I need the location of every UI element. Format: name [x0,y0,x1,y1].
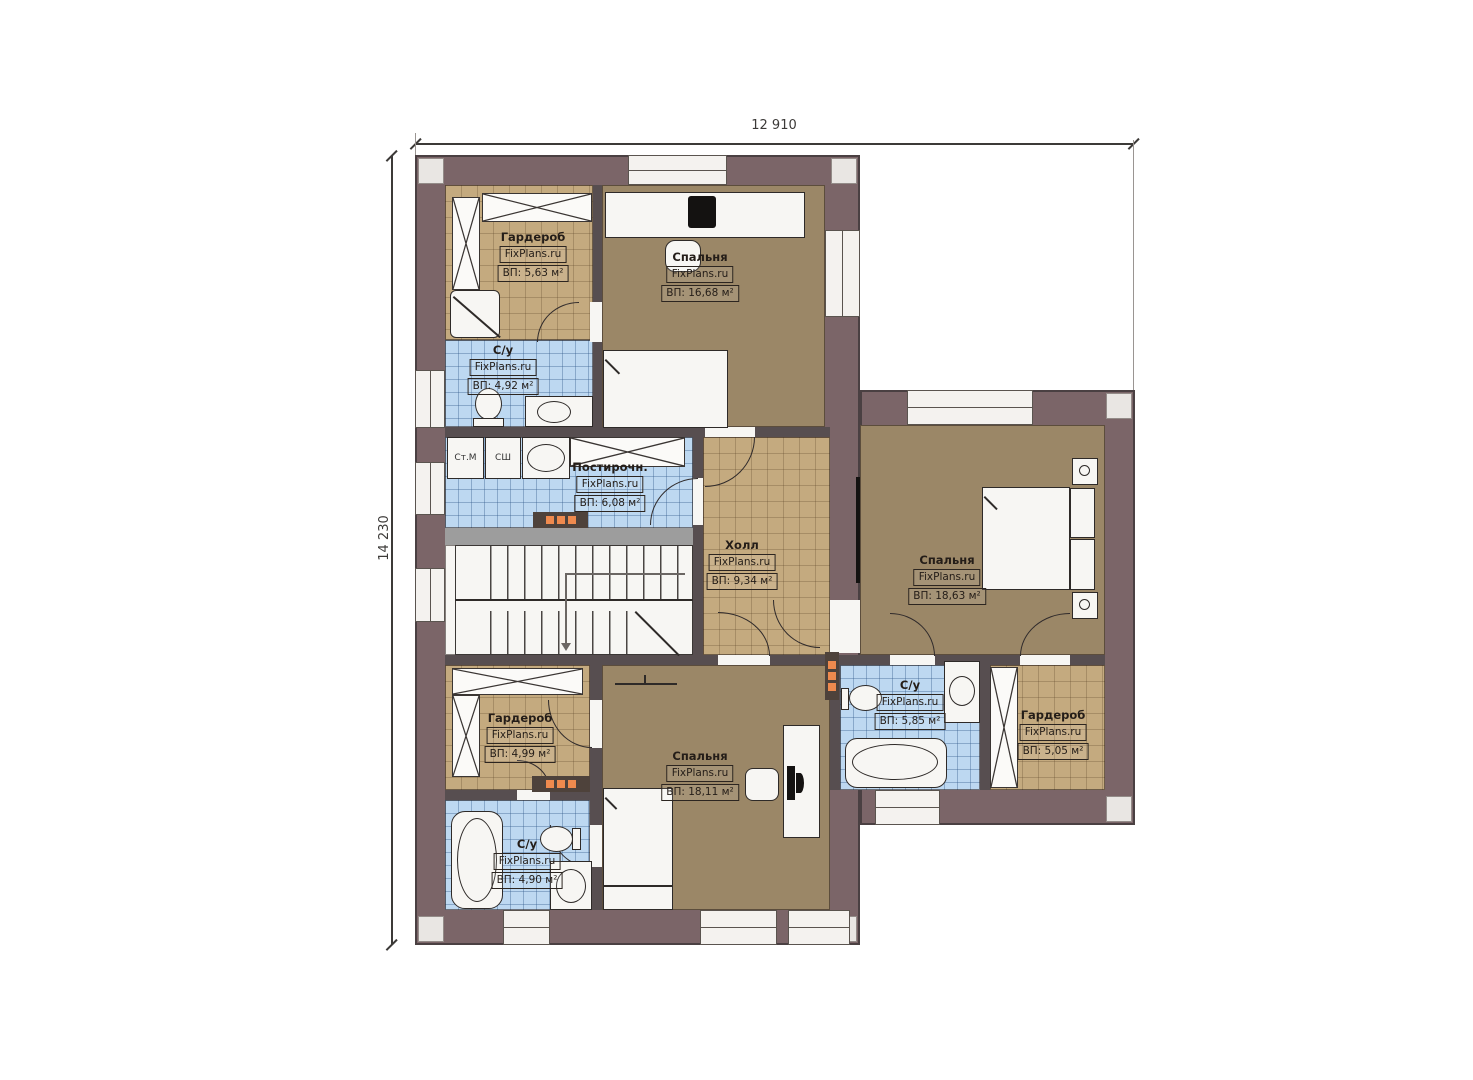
room-source: FixPlans.ru [487,727,554,744]
room-area: ВП: 18,11 м² [661,784,739,801]
room-name: Гардероб [501,230,566,244]
window [628,155,727,185]
room-source: FixPlans.ru [667,266,734,283]
sink [527,444,565,472]
blanket-fold [605,797,617,809]
room-label-bathroom-right: С/у FixPlans.ru ВП: 5,85 м² [875,678,946,730]
ceiling-lamp [615,683,677,685]
room-label-bedroom-right: Спальня FixPlans.ru ВП: 18,63 м² [908,553,986,605]
window [503,910,550,945]
bed [603,350,728,428]
nightstand [1072,592,1098,619]
building: Ст.М СШ Гардероб FixPlans.ru ВП: 5,63 м²… [415,155,1135,945]
room-name: Холл [725,538,759,552]
wall-corner [418,158,444,184]
dimension-width-line [415,143,1133,145]
room-name: Гардероб [488,711,553,725]
lamp [1079,599,1090,610]
headboard [1070,539,1095,590]
door-opening [830,600,860,653]
window [415,462,445,515]
washing-machine: Ст.М [447,437,484,479]
door-opening [718,655,770,665]
shower [450,290,500,338]
room-name: С/у [517,837,537,851]
room-name: Постирочн. [572,460,647,474]
bathtub-basin [852,744,938,780]
door-opening [705,427,755,437]
bed [982,487,1070,590]
wall-corner [1106,796,1132,822]
bed [603,788,673,886]
room-source: FixPlans.ru [577,476,644,493]
stair-walkline [565,573,685,575]
room-label-bedroom-bottom: Спальня FixPlans.ru ВП: 18,11 м² [661,749,739,801]
wall [445,427,830,437]
wall [445,655,1105,665]
wall [980,665,990,790]
toilet-tank [473,418,504,427]
door-opening [1020,655,1070,665]
room-label-hall: Холл FixPlans.ru ВП: 9,34 м² [707,538,778,590]
window [415,568,445,622]
printer [688,196,716,228]
room-label-bathroom-bottom: С/у FixPlans.ru ВП: 4,90 м² [492,837,563,889]
tv [856,477,860,583]
toilet-tank [841,688,849,710]
room-label-wardrobe-bottom: Гардероб FixPlans.ru ВП: 4,99 м² [485,711,556,763]
room-name: Спальня [672,250,727,264]
window [700,910,777,945]
room-area: ВП: 4,92 м² [468,378,539,395]
nightstand [1072,458,1098,485]
radiator [825,652,839,700]
door-opening [590,302,602,342]
closet [452,695,480,777]
room-label-wardrobe-top: Гардероб FixPlans.ru ВП: 5,63 м² [498,230,569,282]
window [415,370,445,428]
radiator [533,512,588,528]
room-area: ВП: 5,05 м² [1018,743,1089,760]
wall [693,437,703,655]
wall-corner [418,916,444,942]
room-name: Гардероб [1021,708,1086,722]
extension-line [415,133,416,155]
lamp [1079,465,1090,476]
stair-walkline [565,573,567,645]
stair-landing-edge [455,599,693,601]
room-name: С/у [493,343,513,357]
blanket-fold [605,359,620,374]
room-label-wardrobe-right: Гардероб FixPlans.ru ВП: 5,05 м² [1018,708,1089,760]
window [788,910,850,945]
room-source: FixPlans.ru [667,765,734,782]
closet [990,667,1018,788]
room-area: ВП: 16,68 м² [661,285,739,302]
room-area: ВП: 6,08 м² [575,495,646,512]
shower-glass [453,296,501,338]
blanket-fold [984,496,998,510]
window [875,790,940,825]
room-source: FixPlans.ru [500,246,567,263]
room-label-bathroom-left: С/у FixPlans.ru ВП: 4,92 м² [468,343,539,395]
closet [452,197,480,290]
room-area: ВП: 4,99 м² [485,746,556,763]
radiator [532,776,590,792]
room-label-bedroom-top: Спальня FixPlans.ru ВП: 16,68 м² [661,250,739,302]
headboard [603,886,673,910]
room-area: ВП: 5,63 м² [498,265,569,282]
window [907,390,1033,425]
monitor [787,766,795,800]
room-name: С/у [900,678,920,692]
wall [445,528,693,545]
desk-chair [745,768,779,801]
wall-corner [1106,393,1132,419]
room-source: FixPlans.ru [1020,724,1087,741]
bathtub [845,738,947,788]
room-area: ВП: 9,34 м² [707,573,778,590]
dimension-width-label: 12 910 [415,118,1133,133]
room-source: FixPlans.ru [470,359,537,376]
headboard [1070,488,1095,538]
room-source: FixPlans.ru [709,554,776,571]
closet [482,193,592,222]
window [825,230,860,317]
ceiling-lamp [644,675,646,685]
drying-machine: СШ [485,437,521,479]
wall-corner [831,158,857,184]
room-name: Спальня [919,553,974,567]
sink [537,401,571,423]
room-source: FixPlans.ru [877,694,944,711]
stair-walkline-arrow [561,643,571,651]
door-opening [890,655,935,665]
room-name: Спальня [672,749,727,763]
dimension-height-line [391,155,393,945]
floor-plan-sheet: 12 910 14 230 [0,0,1473,1080]
room-area: ВП: 18,63 м² [908,588,986,605]
room-area: ВП: 5,85 м² [875,713,946,730]
closet [452,668,583,695]
monitor-stand [796,773,804,793]
room-source: FixPlans.ru [914,569,981,586]
toilet-tank [572,828,581,850]
room-area: ВП: 4,90 м² [492,872,563,889]
room-label-laundry: Постирочн. FixPlans.ru ВП: 6,08 м² [572,460,647,512]
sink [949,676,975,706]
room-source: FixPlans.ru [494,853,561,870]
